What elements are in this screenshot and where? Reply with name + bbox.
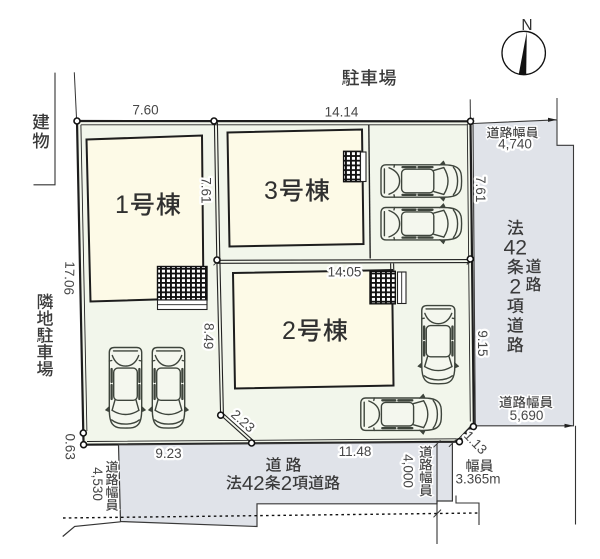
svg-text:42: 42 <box>504 237 528 260</box>
svg-text:14.05: 14.05 <box>328 264 362 279</box>
svg-text:N: N <box>521 17 532 34</box>
svg-text:42: 42 <box>242 472 265 495</box>
svg-text:7.61: 7.61 <box>473 176 488 202</box>
svg-text:7.61: 7.61 <box>199 177 214 203</box>
svg-text:2: 2 <box>282 317 296 345</box>
svg-text:8.49: 8.49 <box>201 323 217 350</box>
svg-text:1: 1 <box>115 191 129 219</box>
svg-text:17.06: 17.06 <box>61 261 77 295</box>
svg-text:3: 3 <box>264 177 278 205</box>
svg-text:3.365m: 3.365m <box>455 472 500 487</box>
svg-text:2: 2 <box>281 472 292 495</box>
svg-text:4,000: 4,000 <box>400 454 415 488</box>
svg-text:4,530: 4,530 <box>90 467 105 501</box>
svg-text:14.14: 14.14 <box>325 104 359 119</box>
svg-text:9.23: 9.23 <box>155 446 181 461</box>
svg-text:4,740: 4,740 <box>498 137 532 152</box>
svg-text:2: 2 <box>509 276 521 299</box>
svg-text:0.63: 0.63 <box>63 434 78 460</box>
svg-text:11.48: 11.48 <box>339 444 372 459</box>
svg-text:5,690: 5,690 <box>510 408 544 423</box>
svg-text:9.15: 9.15 <box>475 330 490 356</box>
svg-text:7.60: 7.60 <box>132 102 158 117</box>
